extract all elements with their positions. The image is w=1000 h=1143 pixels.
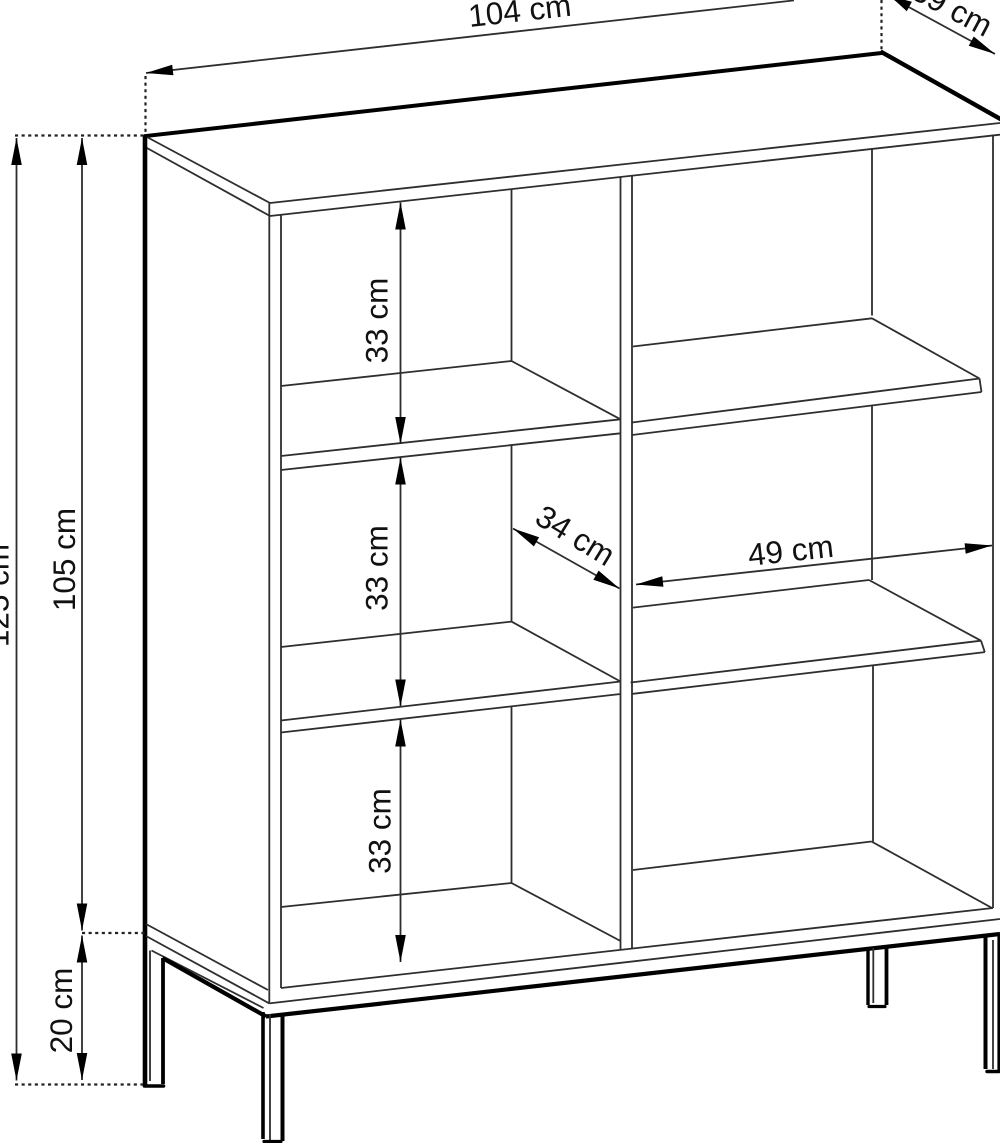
svg-text:105 cm: 105 cm (46, 508, 82, 611)
svg-text:33 cm: 33 cm (361, 788, 397, 874)
svg-text:125 cm: 125 cm (0, 544, 15, 647)
svg-text:20 cm: 20 cm (43, 968, 79, 1054)
svg-text:33 cm: 33 cm (358, 278, 394, 364)
svg-text:33 cm: 33 cm (358, 525, 394, 611)
